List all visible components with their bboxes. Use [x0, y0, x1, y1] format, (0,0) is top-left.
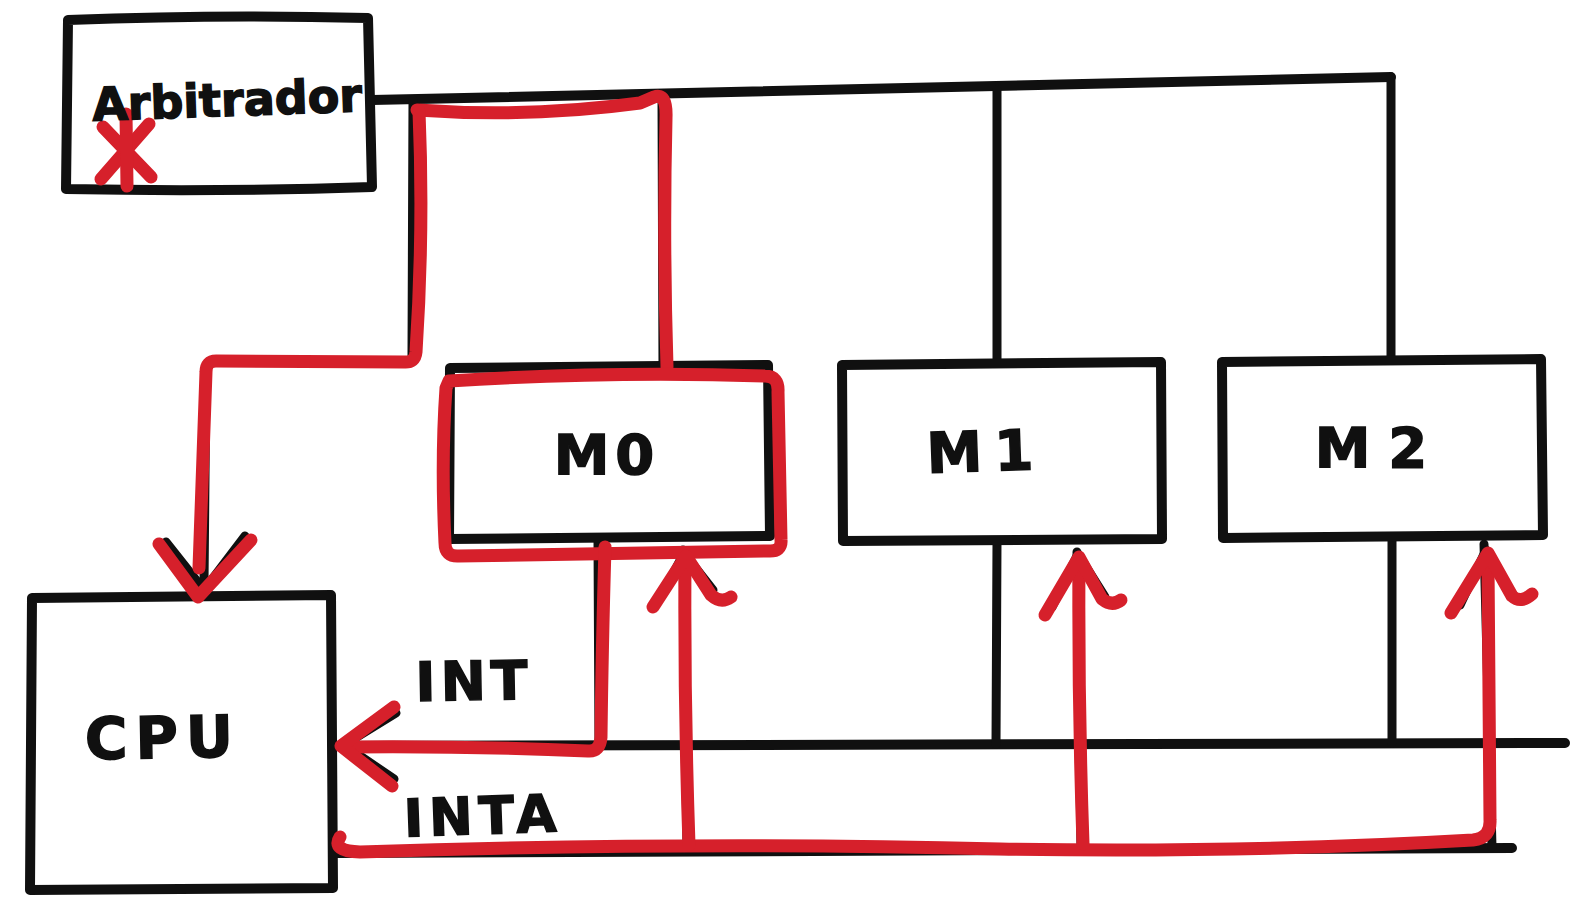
- red-m0-arrowhead: [653, 556, 731, 607]
- m1-int-riser-line: [996, 542, 997, 744]
- red-trace-inta-to-m0: [685, 562, 689, 845]
- arbitration-bus-line: [372, 77, 1391, 100]
- cpu-label: CPU: [84, 703, 241, 774]
- diagram-svg: Arbitrador M0 M1 M2 CPU INT INTA: [0, 0, 1580, 906]
- arbitrador-label: Arbitrador: [91, 68, 363, 131]
- m1-label: M1: [925, 417, 1046, 486]
- m0-label: M0: [554, 422, 661, 487]
- red-trace-inta-to-m1: [1079, 561, 1083, 844]
- m2-label: M2: [1315, 415, 1446, 480]
- int-signal-label: INT: [415, 649, 533, 714]
- hand-drawn-bus-diagram: Arbitrador M0 M1 M2 CPU INT INTA: [0, 0, 1580, 906]
- red-trace-bus-to-m0: [417, 96, 667, 367]
- inta-signal-label: INTA: [403, 783, 564, 848]
